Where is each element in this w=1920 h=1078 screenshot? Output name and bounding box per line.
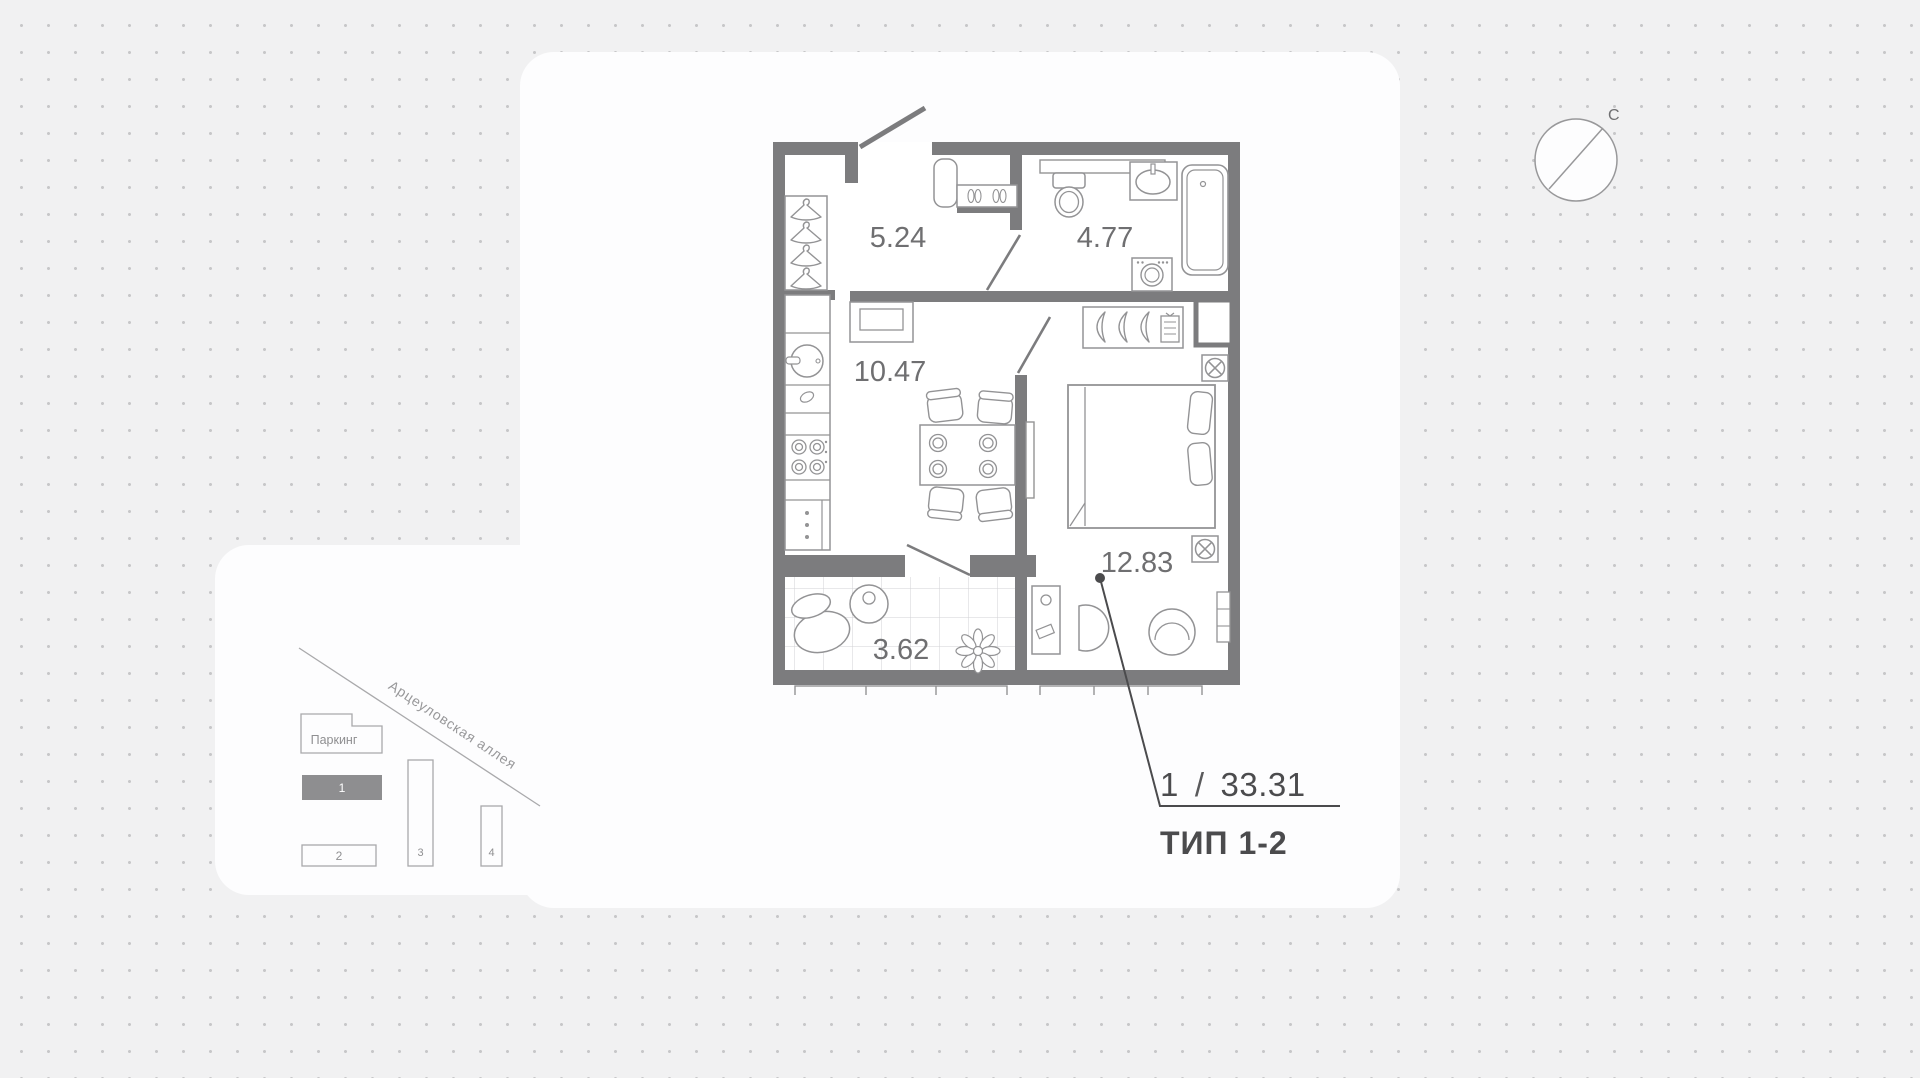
- rooms-count: 1: [1160, 766, 1179, 803]
- minimap-building-1-label: 1: [339, 781, 346, 795]
- separator: /: [1195, 766, 1205, 803]
- minimap-building-3-label: 3: [417, 847, 423, 859]
- minimap-building-2-label: 2: [336, 849, 343, 863]
- minimap-building-4-label: 4: [488, 847, 494, 859]
- rooms-and-area: 1/33.31: [1160, 766, 1306, 804]
- compass-icon: С: [1535, 107, 1620, 201]
- apartment-type-label: ТИП 1-2: [1160, 825, 1306, 862]
- annotations-layer: С Арцеуловская аллея Паркинг 1 2 3 4: [0, 0, 1920, 1078]
- compass-north-label: С: [1608, 107, 1620, 124]
- page-background: { "plan": { "rooms": [ {"name": "hallway…: [0, 0, 1920, 1078]
- parking-label: Паркинг: [311, 733, 358, 747]
- street-name: Арцеуловская аллея: [386, 677, 520, 772]
- apartment-callout: 1/33.31 ТИП 1-2: [1160, 766, 1306, 862]
- site-minimap: Арцеуловская аллея Паркинг 1 2 3 4: [299, 648, 540, 866]
- total-area: 33.31: [1221, 766, 1306, 803]
